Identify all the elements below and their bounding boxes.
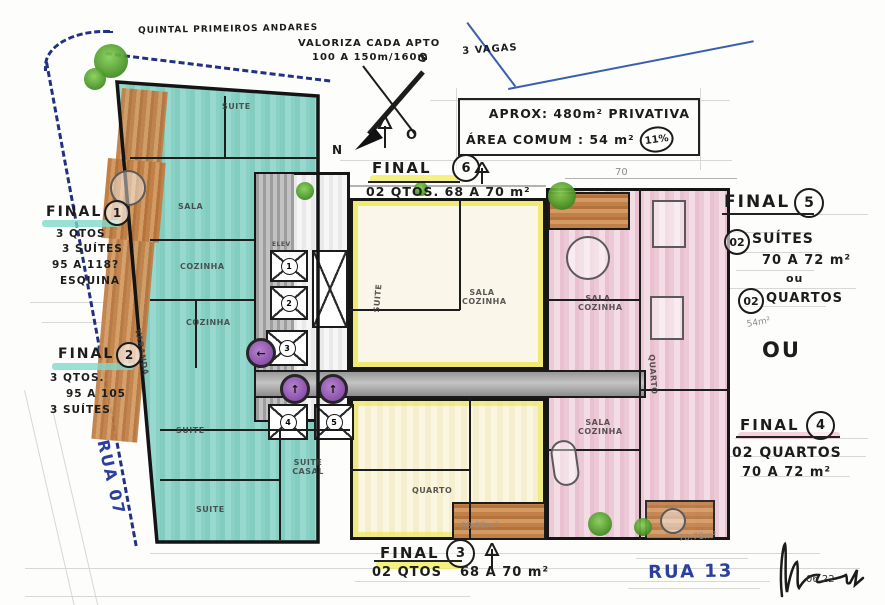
circulation-circle: ← <box>246 338 276 368</box>
floor-plan-sketch: 1 2 3 4 5 ELEV ← ↑ ↑ SAL <box>0 0 885 605</box>
final-1-line-1: 3 QTOS <box>56 228 106 240</box>
corridor <box>254 370 646 398</box>
area-comum-text: ÁREA COMUM : 54 m² <box>466 132 635 147</box>
final-3-line-2: 68 A 70 m² <box>460 565 549 580</box>
bed <box>652 200 686 248</box>
room-label-elev: ELEV <box>272 241 291 248</box>
room-label-sala-cozinha: SALA COZINHA <box>462 288 502 306</box>
underline <box>722 213 814 215</box>
room-label-suite: SUITE <box>196 505 225 514</box>
room-label-cozinha: COZINHA <box>186 318 231 327</box>
note-7070: 70.70m² <box>678 531 717 544</box>
elevator-number: 3 <box>279 340 296 357</box>
guide-line <box>25 596 470 597</box>
elevator-cell <box>312 250 348 328</box>
final-3-number: 3 <box>446 539 475 568</box>
final-6-title: FINAL <box>372 159 432 177</box>
elevator-cell: 1 <box>270 250 308 282</box>
room-label-sala: SALA <box>178 202 203 211</box>
room-label-cozinha: COZINHA <box>180 262 225 271</box>
table <box>660 508 686 534</box>
or-big-text: OU <box>762 338 801 362</box>
guide-line <box>628 588 760 589</box>
final-2-title: FINAL <box>58 346 114 362</box>
final-1-line-4: ESQUINA <box>60 275 120 287</box>
final-1-line-3: 95 A 118? <box>52 259 119 271</box>
final-4-title: FINAL <box>740 416 800 434</box>
final-5-title: FINAL <box>724 192 790 212</box>
final-1-line-2: 3 SUÍTES <box>62 243 123 255</box>
room-label-suite-casal: SUITE CASAL <box>286 458 330 476</box>
elevator-cell: 2 <box>270 286 308 320</box>
bed <box>650 296 684 340</box>
signature <box>762 538 872 600</box>
room-label-quarto: QUARTO <box>412 486 452 495</box>
underline <box>374 560 462 562</box>
leader-arrow-up <box>474 162 490 184</box>
dining-table <box>566 236 610 280</box>
room-label-sala-cozinha: SALA COZINHA <box>578 294 618 312</box>
foliage <box>84 68 106 90</box>
foliage <box>548 182 576 210</box>
final-2-line-1: 3 QTOS. <box>50 372 105 384</box>
street-rua-13: RUA 13 <box>648 561 734 583</box>
elevator-number: 1 <box>281 258 298 275</box>
final-5-size: 70 A 72 m² <box>762 253 851 268</box>
elevator-number: 2 <box>281 295 298 312</box>
circulation-circle: ↑ <box>280 374 310 404</box>
final-2-number: 2 <box>116 342 142 368</box>
guide-line <box>736 270 814 271</box>
elevator-cell: 4 <box>268 404 308 440</box>
foliage <box>588 512 612 536</box>
note-corner: QUINTAL PRIMEIROS ANDARES <box>138 23 318 36</box>
compass-north-label: N <box>332 143 343 157</box>
foliage <box>296 182 314 200</box>
area-privativa-text: APROX: 480m² PRIVATIVA <box>489 106 690 121</box>
underline <box>368 181 460 183</box>
underline <box>736 436 840 438</box>
final-5-quartos: QUARTOS <box>766 291 843 306</box>
final-2-line-3: 3 SUÍTES <box>50 404 111 416</box>
room-label-suite: SUITE <box>222 102 251 111</box>
final-1-number: 1 <box>104 200 130 226</box>
street-edge-line <box>24 390 76 605</box>
guide-line <box>722 288 856 289</box>
note-54m2: 54m² <box>746 316 771 330</box>
final-1-title: FINAL <box>46 204 102 220</box>
final-6-desc: 02 QTOS. 68 A 70 m² <box>366 184 531 199</box>
final-5-qty-1: 02 <box>724 229 750 255</box>
note-vagas: 3 VAGAS <box>462 42 518 57</box>
circulation-circle: ↑ <box>318 374 348 404</box>
compass-icon <box>325 48 445 158</box>
final-5-qty-2: 02 <box>738 288 764 314</box>
guide-line <box>636 558 748 559</box>
guide-line <box>700 88 701 170</box>
dimension-70-label: 70 <box>615 167 628 178</box>
room-label-sala-cozinha: SALA COZINHA <box>578 418 618 436</box>
elevator-cell: 5 <box>314 404 354 440</box>
property-boundary-dashed <box>106 52 331 83</box>
room-label-suite: SUITE <box>176 426 205 435</box>
leader-arrow-up <box>484 543 500 569</box>
final-5-suites: SUÍTES <box>752 231 814 247</box>
final-5-or: ou <box>786 272 803 285</box>
pen-stroke <box>508 40 754 90</box>
final-3-line-1: 02 QTOS <box>372 565 442 580</box>
note-valoriza-1: VALORIZA CADA APTO <box>298 38 440 49</box>
elevator-number: 5 <box>326 414 343 431</box>
note-valoriza-2: 100 A 150m/160m <box>312 52 429 63</box>
final-4-line-1: 02 QUARTOS <box>732 445 842 461</box>
compass-west-label: O <box>406 128 418 143</box>
foliage <box>634 518 652 536</box>
final-2-line-2: 95 A 105 <box>66 388 126 400</box>
signature-date: 06.22 <box>806 574 835 585</box>
note-6868: 68.68m² <box>460 521 498 532</box>
dimension-line <box>565 178 737 179</box>
final-4-line-2: 70 A 72 m² <box>742 465 831 480</box>
elevator-number: 4 <box>280 414 297 431</box>
